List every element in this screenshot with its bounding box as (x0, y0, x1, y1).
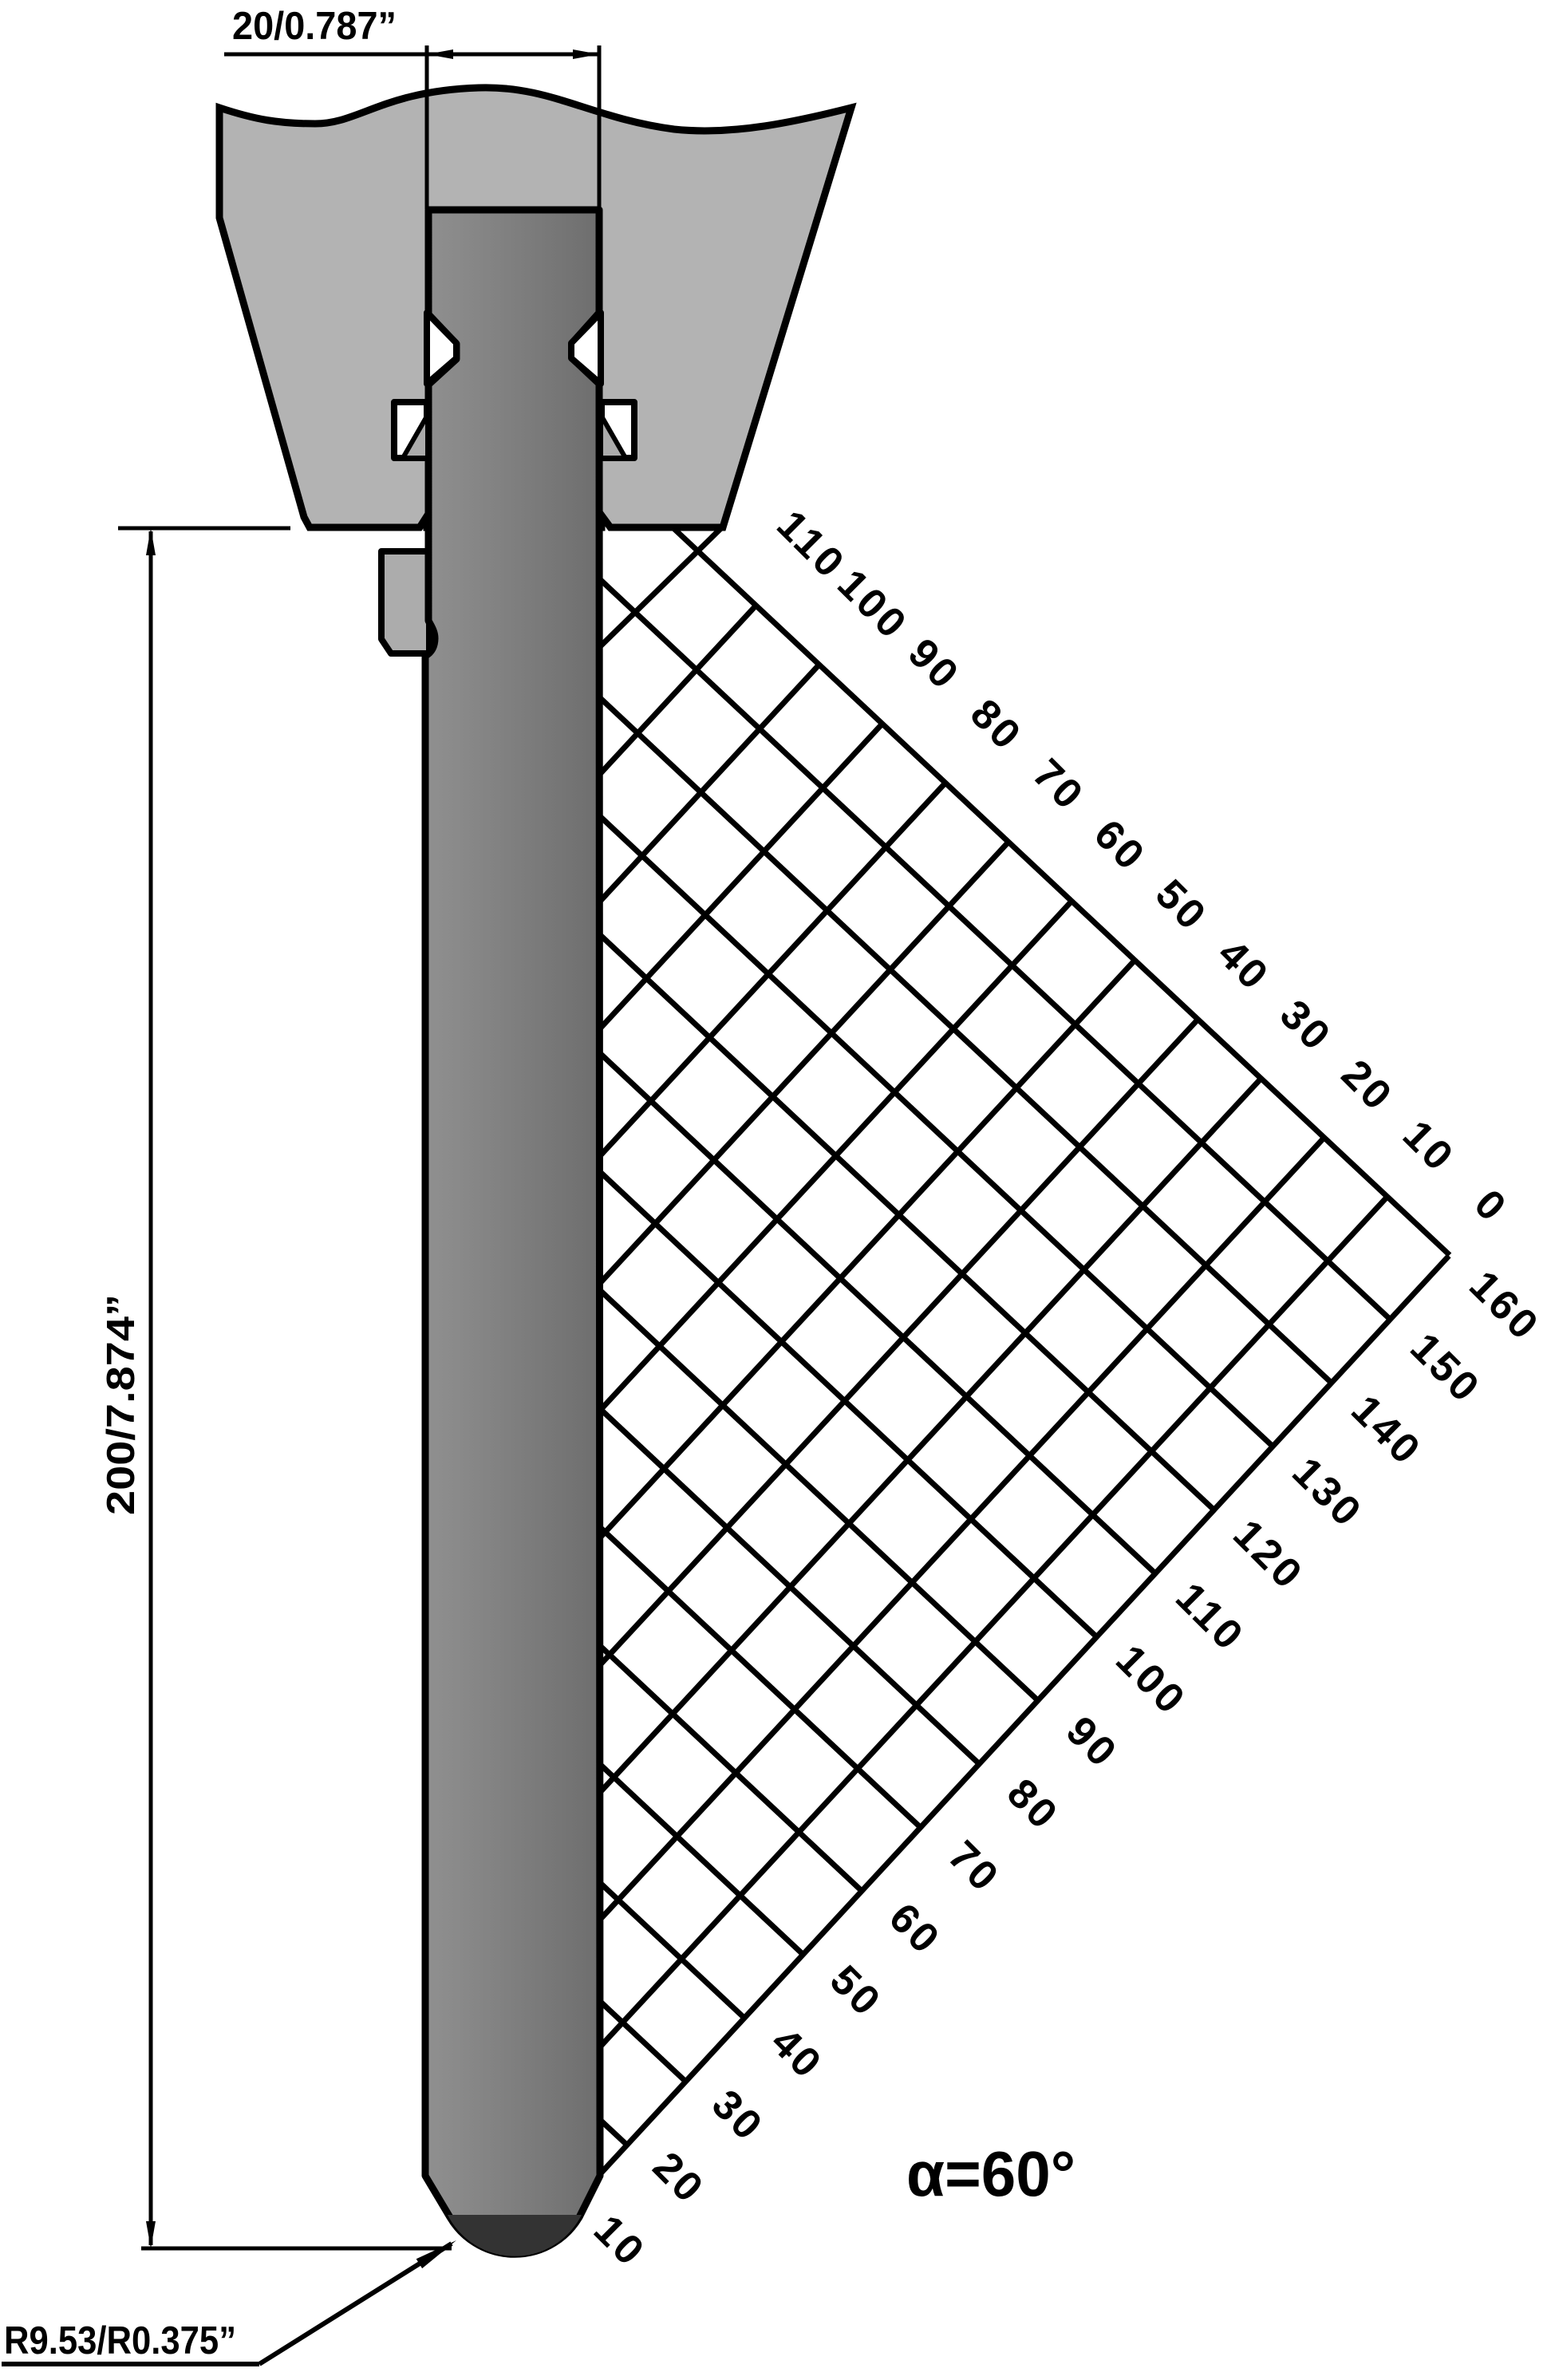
svg-text:20/0.787”: 20/0.787” (232, 5, 397, 48)
svg-text:α=60°: α=60° (906, 2138, 1075, 2209)
svg-text:200/7.874”: 200/7.874” (100, 1294, 143, 1515)
svg-text:R9.53/R0.375”: R9.53/R0.375” (4, 2319, 236, 2362)
